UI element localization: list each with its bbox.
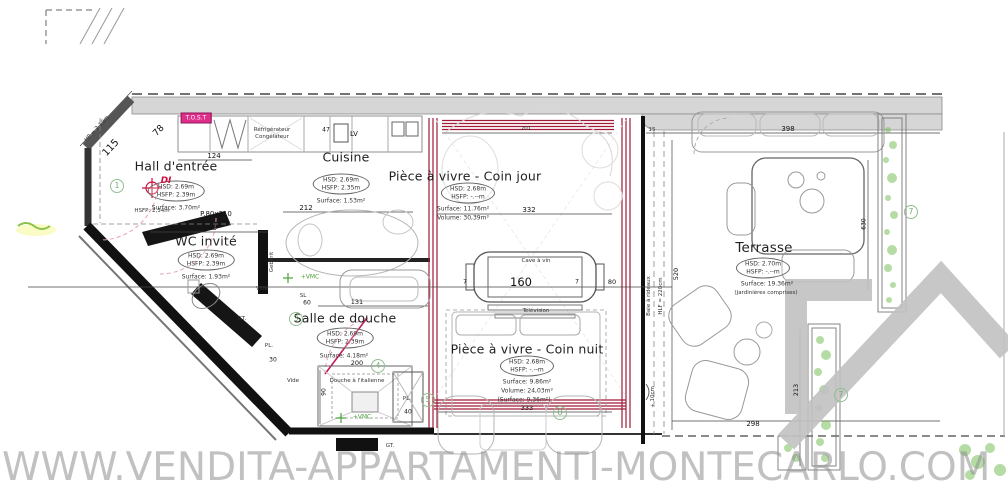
agency-logo-watermark	[786, 277, 1008, 442]
dim-212: 212	[299, 204, 312, 212]
room-title-cuisine: Cuisine	[322, 150, 369, 165]
wine-cellar-label: Cave à vin	[522, 258, 551, 264]
ref-circle-1: 1	[110, 179, 124, 193]
dim-40: 40	[404, 409, 412, 416]
entry-door-badge: T.O.S.T	[181, 113, 212, 124]
sl-label: SL	[300, 293, 307, 299]
dim-131: 131	[351, 298, 363, 306]
dim-47: 47	[322, 127, 330, 134]
dim-7a: 7	[463, 279, 467, 286]
coin-nuit-stats-oval: HSD: 2.68m HSFP: -.--m	[500, 356, 554, 377]
television-label: Télévision	[523, 308, 550, 314]
ref-circle-7b: 7	[834, 388, 848, 402]
wc-hsd: HSD: 2.69m	[187, 253, 226, 261]
ref-circle-3: 3	[289, 312, 303, 326]
dim-213: 213	[792, 384, 800, 396]
cuisine-stats-oval: HSD: 2.69m HSFP: 2.35m	[313, 174, 370, 195]
dim-238: 238	[203, 224, 216, 232]
wc-hsfp: HSFP: 2.39m	[187, 260, 226, 268]
hall-stats-oval: HSD: 2.69m HSFP: 2.39m	[148, 181, 205, 202]
coin-nuit-surface2: (Surface: 9,36m²)	[497, 397, 550, 404]
room-title-terrasse: Terrasse	[735, 240, 792, 256]
room-title-coin-nuit: Pièce à vivre - Coin nuit	[451, 342, 604, 357]
dishwasher-label: LV	[350, 130, 358, 138]
pl-label-2: PL.	[403, 396, 411, 402]
dim-80: 80	[608, 278, 616, 286]
room-title-douche: Salle de douche	[294, 311, 397, 326]
watermark-url: WWW.VENDITA-APPARTAMENTI-MONTECARLO.COM	[2, 445, 1008, 487]
coin-jour-hsd: HSD: 2.68m	[450, 186, 486, 194]
dim-298: 298	[746, 420, 759, 428]
dim-90: 90	[321, 388, 328, 396]
coin-nuit-volume: Volume: 24,03m³	[501, 388, 553, 395]
terrasse-stats-oval: HSD: 2.70m HSFP: -.--m	[736, 258, 790, 279]
room-title-hall: Hall d'entrée	[135, 159, 218, 174]
room-title-coin-jour: Pièce à vivre - Coin jour	[389, 169, 542, 184]
coin-nuit-hsfp: HSFP: -.--m	[509, 366, 545, 374]
curtain-bay-label: Baie à rideaux	[646, 276, 652, 316]
coin-nuit-hsd: HSD: 2.68m	[509, 359, 545, 367]
wc-stats-oval: HSD: 2.69m HSFP: 2.39m	[178, 250, 235, 271]
dim-398: 398	[781, 125, 794, 133]
cuisine-surface: Surface: 1.53m²	[317, 198, 365, 205]
vide-label-1: Vide	[256, 286, 268, 292]
wc-surface: Surface: 1.93m²	[182, 274, 230, 281]
floor-plan-page: Hall d'entrée HSD: 2.69m HSFP: 2.39m Sur…	[0, 0, 1008, 487]
coin-jour-surface: Surface: 11.76m²	[437, 206, 489, 213]
cuisine-hsfp: HSFP: 2.35m	[322, 184, 361, 192]
vmc-label-2: +VMC	[353, 414, 372, 421]
hall-door-size: P.80x210	[200, 210, 232, 218]
terrasse-note: (Jardinières comprises)	[734, 290, 797, 296]
douche-hsfp: HSFP: 2.39m	[326, 338, 365, 346]
pl-label-1: PL.	[265, 343, 273, 349]
dim-60: 60	[303, 300, 311, 307]
ref-circle-4: 4	[371, 359, 385, 373]
terrasse-surface: Surface: 19.36m²	[741, 281, 793, 288]
hlf-label: HLF = 220cm	[658, 277, 664, 314]
dim-160: 160	[510, 275, 532, 289]
fridge-label-line1: Réfrigérateur	[254, 127, 290, 133]
ref-circle-7a: 7	[904, 205, 918, 219]
vmc-label-1: +VMC	[301, 274, 320, 281]
dim-201: 201	[521, 126, 532, 132]
room-title-wc: WC invité	[175, 234, 237, 249]
vide-label-2: Vide	[287, 378, 299, 384]
douche-hsd: HSD: 2.69m	[326, 331, 365, 339]
dim-15: 15	[649, 127, 656, 133]
dim-333: 333	[521, 404, 533, 412]
coin-jour-hsfp: HSFP: -.--m	[450, 193, 486, 201]
douche-stats-oval: HSD: 2.69m HSFP: 2.39m	[317, 328, 374, 349]
terrasse-hsd: HSD: 2.70m	[745, 261, 781, 269]
fridge-label-line2: Congélateur	[255, 134, 289, 140]
step-plus10-label: + 10cm	[650, 386, 656, 408]
hall-hsfp: HSFP: 2.39m	[157, 191, 196, 199]
dim-124: 124	[207, 152, 220, 160]
coin-jour-volume: Volume: 30,39m³	[437, 215, 489, 222]
ref-circle-5: 5	[421, 393, 435, 407]
cuisine-hsd: HSD: 2.69m	[322, 177, 361, 185]
dim-630: 630	[861, 218, 868, 229]
hsfp-entree-label: HSFP: 2,34m	[134, 208, 169, 214]
dim-30: 30	[269, 357, 277, 364]
gt-label-1: GT.	[238, 316, 247, 322]
dim-332: 332	[522, 206, 535, 214]
coin-jour-stats-oval: HSD: 2.68m HSFP: -.--m	[441, 183, 495, 204]
di-marker-label: DI	[161, 176, 172, 186]
coin-nuit-surface: Surface: 9.86m²	[503, 379, 551, 386]
terrasse-hsfp: HSFP: -.--m	[745, 268, 781, 276]
ref-circle-8: 8	[553, 406, 567, 420]
geberit-label: Gebérit	[269, 252, 275, 272]
dim-200: 200	[351, 359, 363, 367]
dim-7b: 7	[575, 279, 579, 286]
floorplan-drawing	[0, 0, 1008, 487]
italian-shower-label: Douche à l'italienne	[330, 378, 385, 384]
dim-520: 520	[672, 268, 680, 280]
